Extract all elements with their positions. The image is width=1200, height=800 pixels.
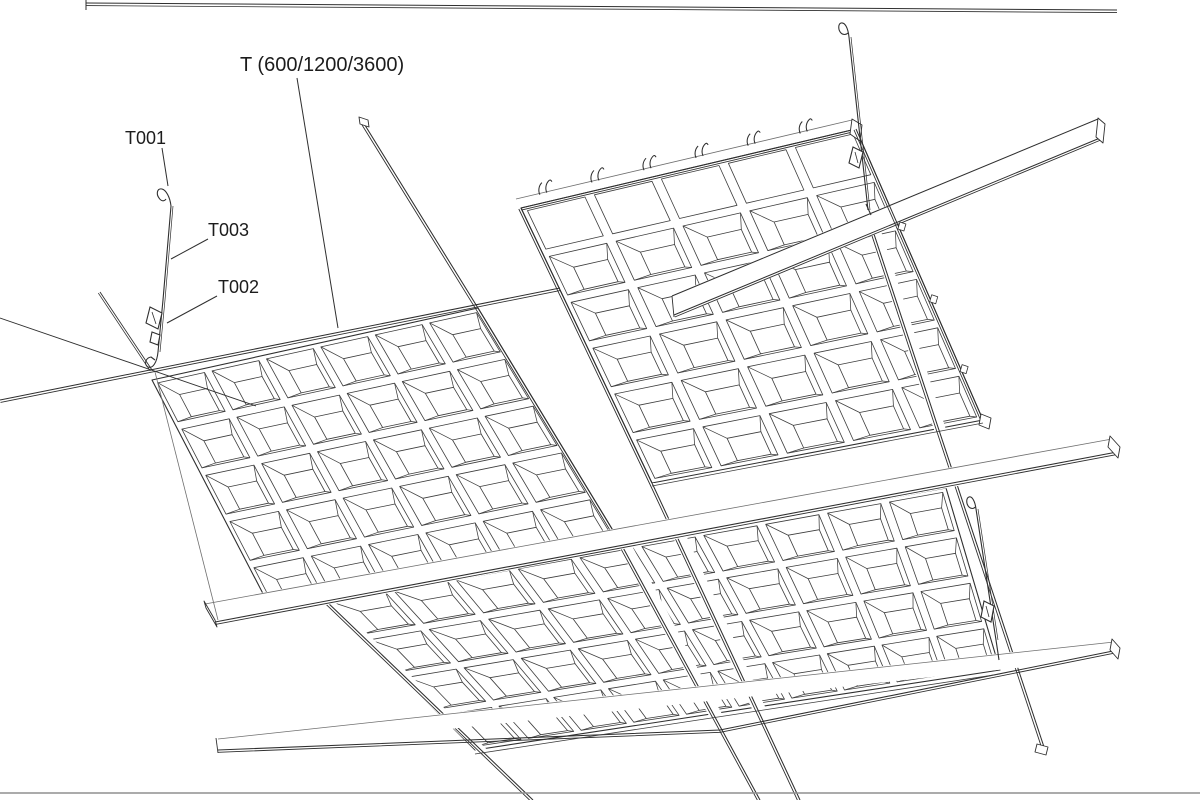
leader-tee-runner bbox=[297, 78, 338, 328]
label-t002: T002 bbox=[218, 277, 259, 297]
label-t003: T003 bbox=[208, 220, 249, 240]
ceiling-suspension-diagram: T (600/1200/3600) T001 T003 T002 bbox=[0, 0, 1200, 800]
leader-t002 bbox=[167, 296, 217, 323]
hanger-wire bbox=[158, 206, 171, 352]
hanger-hook-icon bbox=[157, 189, 171, 206]
label-tee-runner: T (600/1200/3600) bbox=[240, 54, 404, 76]
hanger-hook-icon bbox=[839, 23, 849, 37]
leader-t003 bbox=[171, 239, 208, 259]
hanger-bottom-hook-icon bbox=[146, 352, 158, 367]
hanger-clip-lower bbox=[150, 332, 160, 345]
waffle-panel-middle bbox=[521, 129, 983, 483]
hanger-wire bbox=[160, 206, 173, 352]
diagram-canvas: T (600/1200/3600) T001 T003 T002 bbox=[0, 0, 1200, 800]
hanger-left bbox=[146, 189, 173, 367]
wireframe-scene bbox=[0, 0, 1120, 800]
leader-t001 bbox=[162, 148, 168, 186]
label-t001: T001 bbox=[125, 128, 166, 148]
